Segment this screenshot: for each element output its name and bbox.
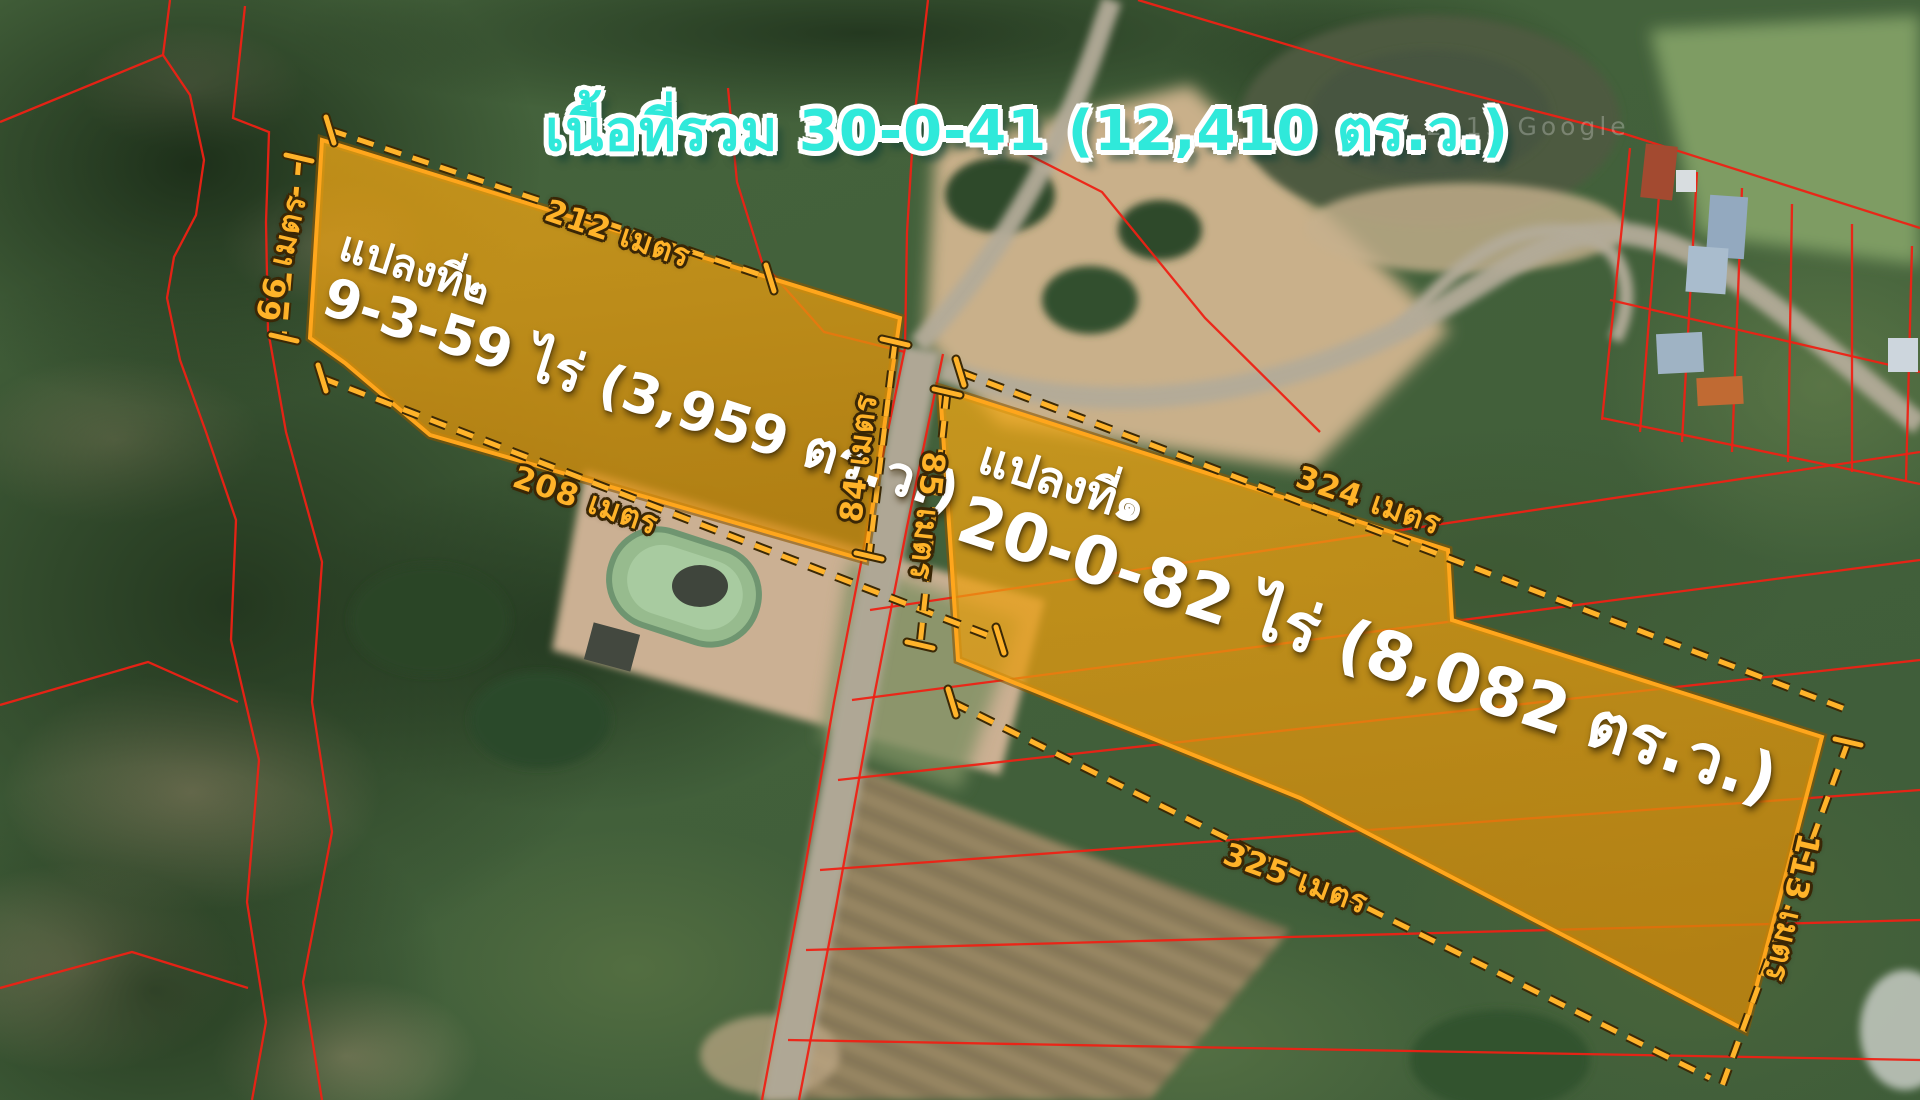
tree-blob <box>1410 1010 1590 1100</box>
page-title: เนื้อที่รวม 30-0-41 (12,410 ตร.ว.) <box>545 86 1509 175</box>
grass-field-topright <box>1650 15 1920 265</box>
tree-blob <box>1118 200 1202 260</box>
tree-blob <box>470 672 610 768</box>
satellite-map: © 2013 Google เนื้อที่รวม 30-0-41 (12,41… <box>0 0 1920 1100</box>
red-roof-house <box>1640 143 1677 200</box>
white-roof-house <box>1888 338 1918 372</box>
blue-roof-house <box>1685 246 1728 295</box>
white-roof-house <box>1676 170 1696 192</box>
blue-roof-house <box>1656 332 1704 374</box>
sand-patch <box>1860 970 1920 1090</box>
tree-blob <box>1042 266 1138 334</box>
tree-blob <box>350 565 510 675</box>
pond-structure <box>672 565 728 607</box>
orange-roof-house <box>1696 376 1743 406</box>
